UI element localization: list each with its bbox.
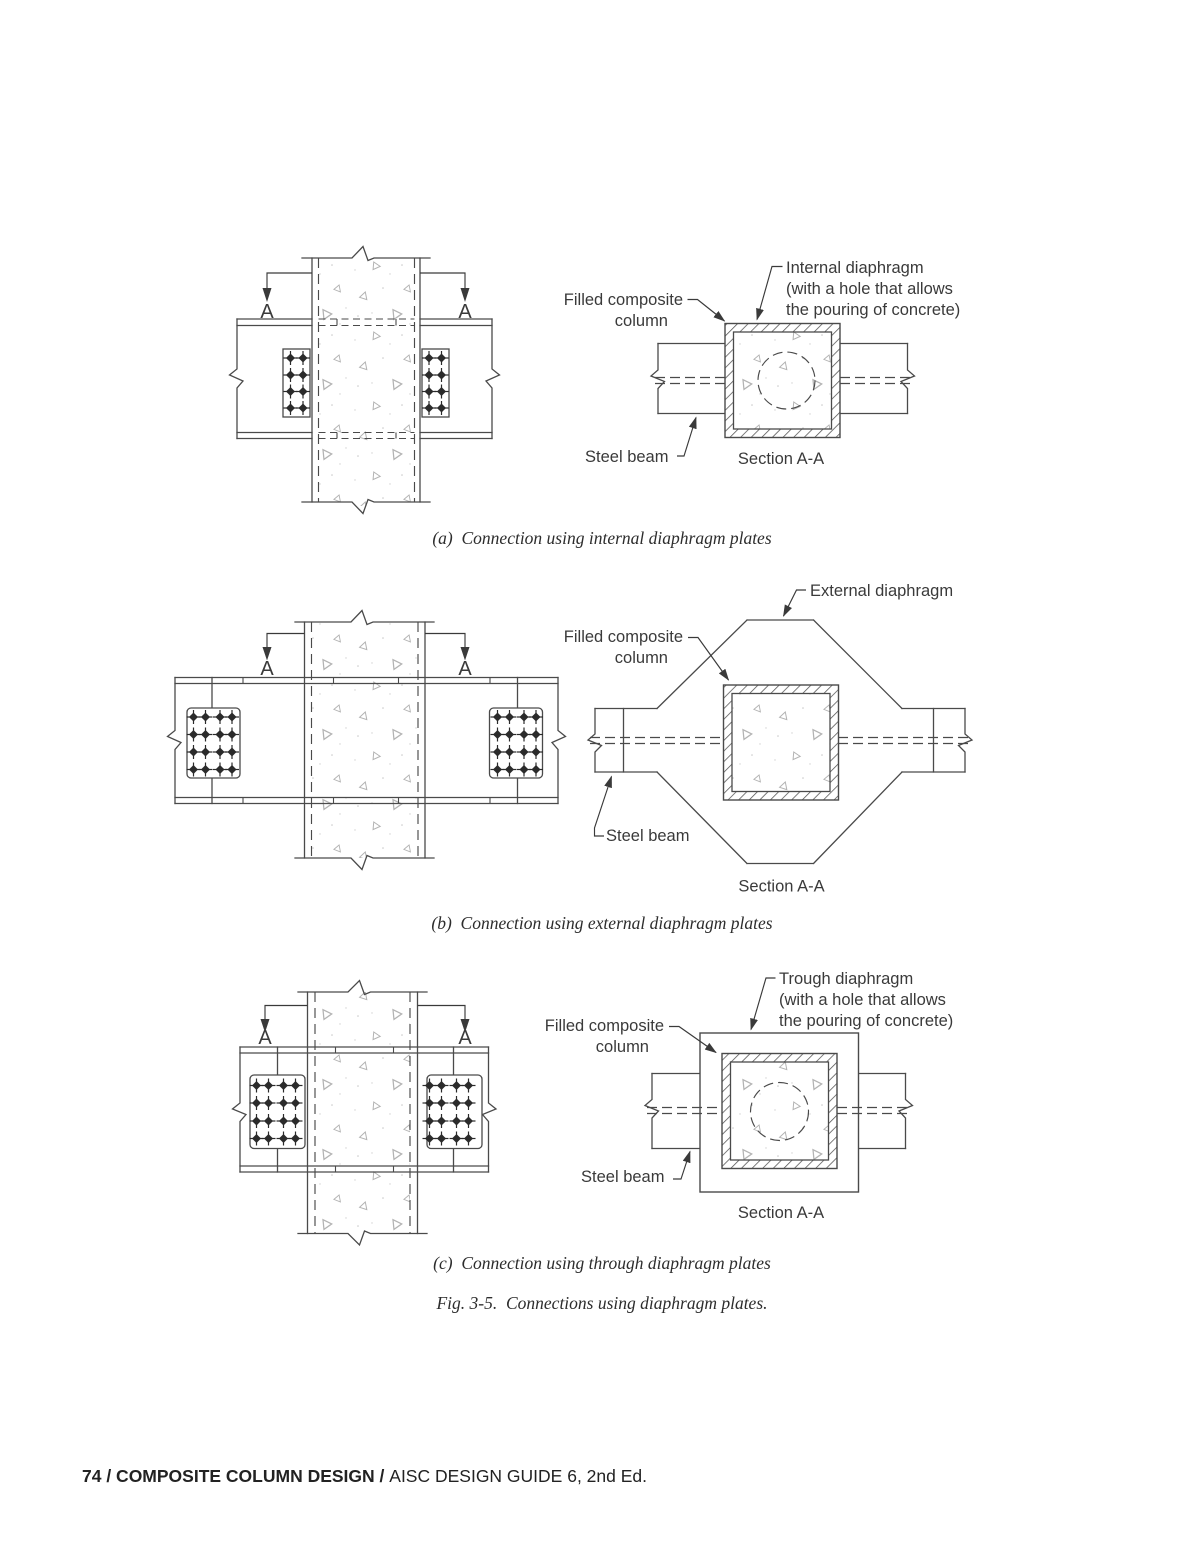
section-arrow-right	[461, 288, 470, 302]
leader-external-diaphragm	[784, 590, 807, 616]
figure-a-elevation-drawing: A A	[230, 247, 500, 514]
beam-break-left	[230, 319, 244, 439]
label-filled-composite-line2: column	[596, 1038, 649, 1056]
section-title: Section A-A	[738, 1204, 824, 1222]
figure-drawings: A A Internal diaphragm (with a hole that…	[0, 0, 1204, 1563]
leader-steel-beam	[673, 1152, 690, 1180]
label-steel-beam: Steel beam	[606, 827, 689, 845]
figure-a-section-drawing: Internal diaphragm (with a hole that all…	[564, 259, 961, 468]
footer-subtitle: AISC DESIGN GUIDE 6, 2nd Ed.	[389, 1466, 647, 1486]
figure-a: A A Internal diaphragm (with a hole that…	[230, 247, 961, 514]
concrete-fill	[319, 258, 415, 506]
caption-b: (b) Connection using external diaphragm …	[0, 913, 1204, 934]
label-trough-diaphragm-line1: Trough diaphragm	[779, 970, 913, 988]
section-cut-line-left	[267, 634, 305, 649]
footer-page-number-and-title: 74 / COMPOSITE COLUMN DESIGN /	[82, 1466, 389, 1486]
beam-break-left	[233, 1047, 247, 1172]
section-cut-line-left	[267, 273, 312, 289]
figure-c-elevation-drawing: A A	[233, 981, 497, 1246]
beam-break-left	[645, 1074, 659, 1149]
beam-break-right	[486, 319, 500, 439]
beam-break-left	[588, 709, 602, 773]
beam-break-right	[959, 709, 973, 773]
caption-a: (a) Connection using internal diaphragm …	[0, 528, 1204, 549]
caption-c: (c) Connection using through diaphragm p…	[0, 1253, 1204, 1274]
label-filled-composite-line1: Filled composite	[564, 628, 683, 646]
leader-internal-diaphragm	[757, 267, 783, 320]
section-marker-a-left: A	[258, 1027, 272, 1049]
figure-b-section-drawing: External diaphragm Filled composite colu…	[564, 582, 972, 896]
beam-break-right	[552, 678, 566, 804]
beam-break-right	[901, 344, 915, 414]
label-filled-composite-line2: column	[615, 649, 668, 667]
figure-b-elevation-drawing: A A	[168, 611, 566, 870]
label-steel-beam: Steel beam	[581, 1168, 664, 1186]
label-trough-diaphragm-line3: the pouring of concrete)	[779, 1012, 953, 1030]
section-cut-line-right	[418, 1006, 466, 1021]
beam-break-left	[168, 678, 182, 804]
label-internal-diaphragm-line3: the pouring of concrete)	[786, 301, 960, 319]
figure-c: A A Trough diaphragm (with a hole that a…	[233, 970, 954, 1245]
section-marker-a-right: A	[458, 301, 472, 323]
concrete-core	[734, 332, 832, 429]
leader-trough-diaphragm	[751, 978, 776, 1030]
section-marker-a-right: A	[458, 1027, 472, 1049]
section-marker-a-right: A	[458, 658, 472, 680]
page-footer: 74 / COMPOSITE COLUMN DESIGN / AISC DESI…	[82, 1466, 647, 1487]
beam-break-right	[899, 1074, 913, 1149]
label-filled-composite-line1: Filled composite	[564, 291, 683, 309]
beam-break-right	[483, 1047, 497, 1172]
section-cut-line-right	[425, 634, 465, 649]
figure-caption: Fig. 3-5. Connections using diaphragm pl…	[0, 1293, 1204, 1314]
label-filled-composite-line1: Filled composite	[545, 1017, 664, 1035]
concrete-core	[732, 694, 830, 792]
label-filled-composite-line2: column	[615, 312, 668, 330]
section-marker-a-left: A	[260, 301, 274, 323]
label-trough-diaphragm-line2: (with a hole that allows	[779, 991, 946, 1009]
section-marker-a-left: A	[260, 658, 274, 680]
beam-break-left	[651, 344, 665, 414]
section-cut-line-left	[265, 1006, 308, 1021]
figure-b: A A External diaphragm Filled composite …	[168, 582, 973, 896]
section-title: Section A-A	[738, 450, 824, 468]
figure-c-section-drawing: Trough diaphragm (with a hole that allow…	[545, 970, 954, 1222]
label-external-diaphragm: External diaphragm	[810, 582, 953, 600]
concrete-core	[731, 1062, 829, 1160]
leader-steel-beam	[677, 418, 696, 457]
document-page: A A Internal diaphragm (with a hole that…	[0, 0, 1204, 1563]
label-internal-diaphragm-line1: Internal diaphragm	[786, 259, 924, 277]
label-internal-diaphragm-line2: (with a hole that allows	[786, 280, 953, 298]
leader-filled-composite	[688, 300, 725, 322]
concrete-fill	[312, 622, 419, 858]
label-steel-beam: Steel beam	[585, 448, 668, 466]
section-cut-line-right	[420, 273, 465, 289]
section-title: Section A-A	[738, 878, 824, 896]
section-arrow-left	[263, 288, 272, 302]
concrete-fill	[315, 992, 410, 1234]
